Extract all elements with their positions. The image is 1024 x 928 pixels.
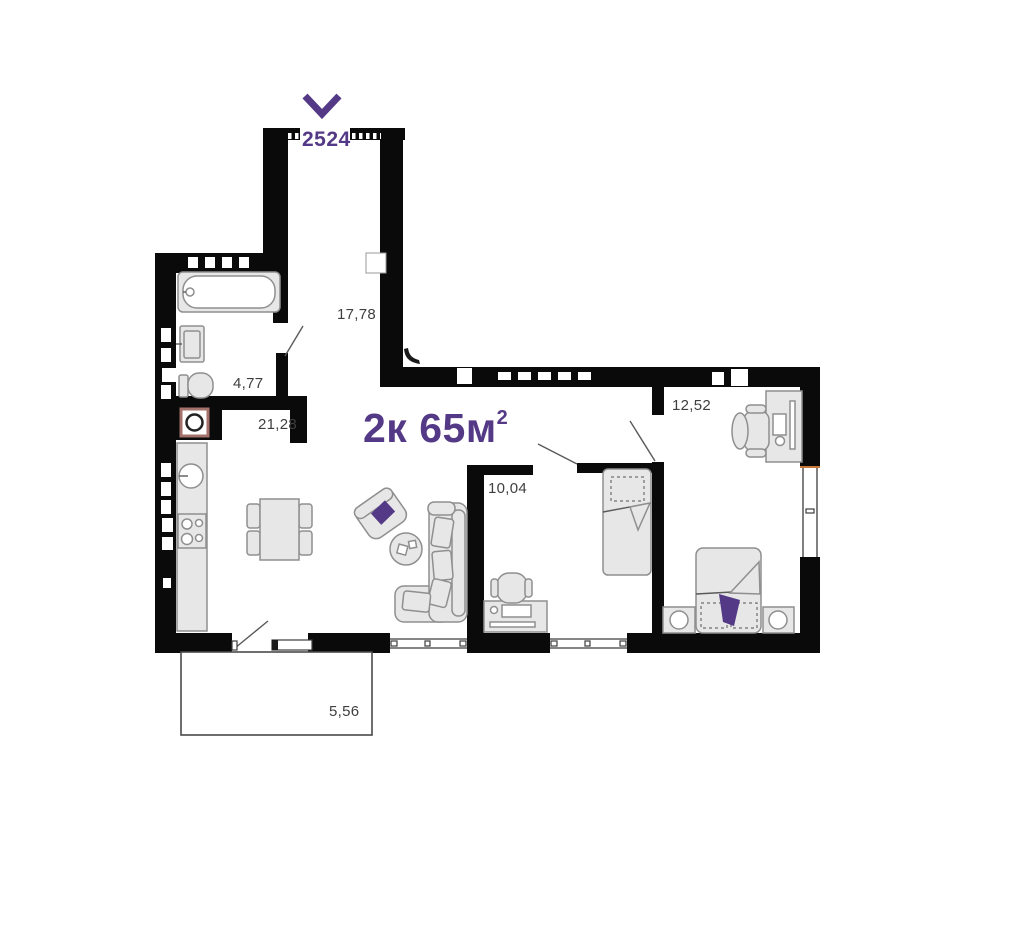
bathtub [178,272,280,312]
apartment-title: 2к 65м2 [363,405,508,451]
washing-machine [181,409,208,436]
floor-plan-page: 2524 [0,0,1024,928]
dining-chair [299,531,312,555]
dining-chair [247,504,260,528]
room-door-swing [538,444,577,464]
coffee-table [390,533,422,565]
floor-plan-svg: 2524 [0,0,1024,928]
stove [178,514,206,548]
window-room-bottom [550,639,627,648]
room-label-balcony: 5,56 [329,703,359,720]
bathroom-door-swing [285,326,303,356]
double-bed [696,548,761,633]
dining-chair [247,531,260,555]
desk [484,601,547,632]
dining-table [260,499,299,560]
toilet [179,373,213,398]
room-label-bedroom: 12,52 [672,397,711,414]
bedroom-chair [732,405,769,457]
entrance-width-label: 2524 [302,128,351,151]
window-bedroom-right [800,467,820,557]
dining-chair [299,504,312,528]
bathroom-sink [176,326,204,362]
room-label-bathroom: 4,77 [233,375,263,392]
dining-table-set [247,499,312,560]
room-label-kitchen-living: 21,28 [258,416,297,433]
corner-mark-icon [404,348,420,364]
nightstand-left [663,607,695,633]
bedroom-desk [766,391,802,462]
window-living-bottom [390,639,467,648]
entrance-door: 2524 [288,93,381,151]
single-bed [603,469,651,575]
apartment-title-sup: 2 [497,407,509,429]
room-label-hallway: 17,78 [337,306,376,323]
entrance-chevron-notch [315,93,329,103]
desk-chair [491,573,532,603]
balcony-outline [181,652,372,735]
kitchen-sink [179,464,203,488]
nightstand-right [763,607,794,633]
apartment-title-main: 2к 65м [363,405,497,451]
balcony-door [232,621,312,650]
room-label-room: 10,04 [488,480,527,497]
bedroom-door-swing [630,421,655,461]
